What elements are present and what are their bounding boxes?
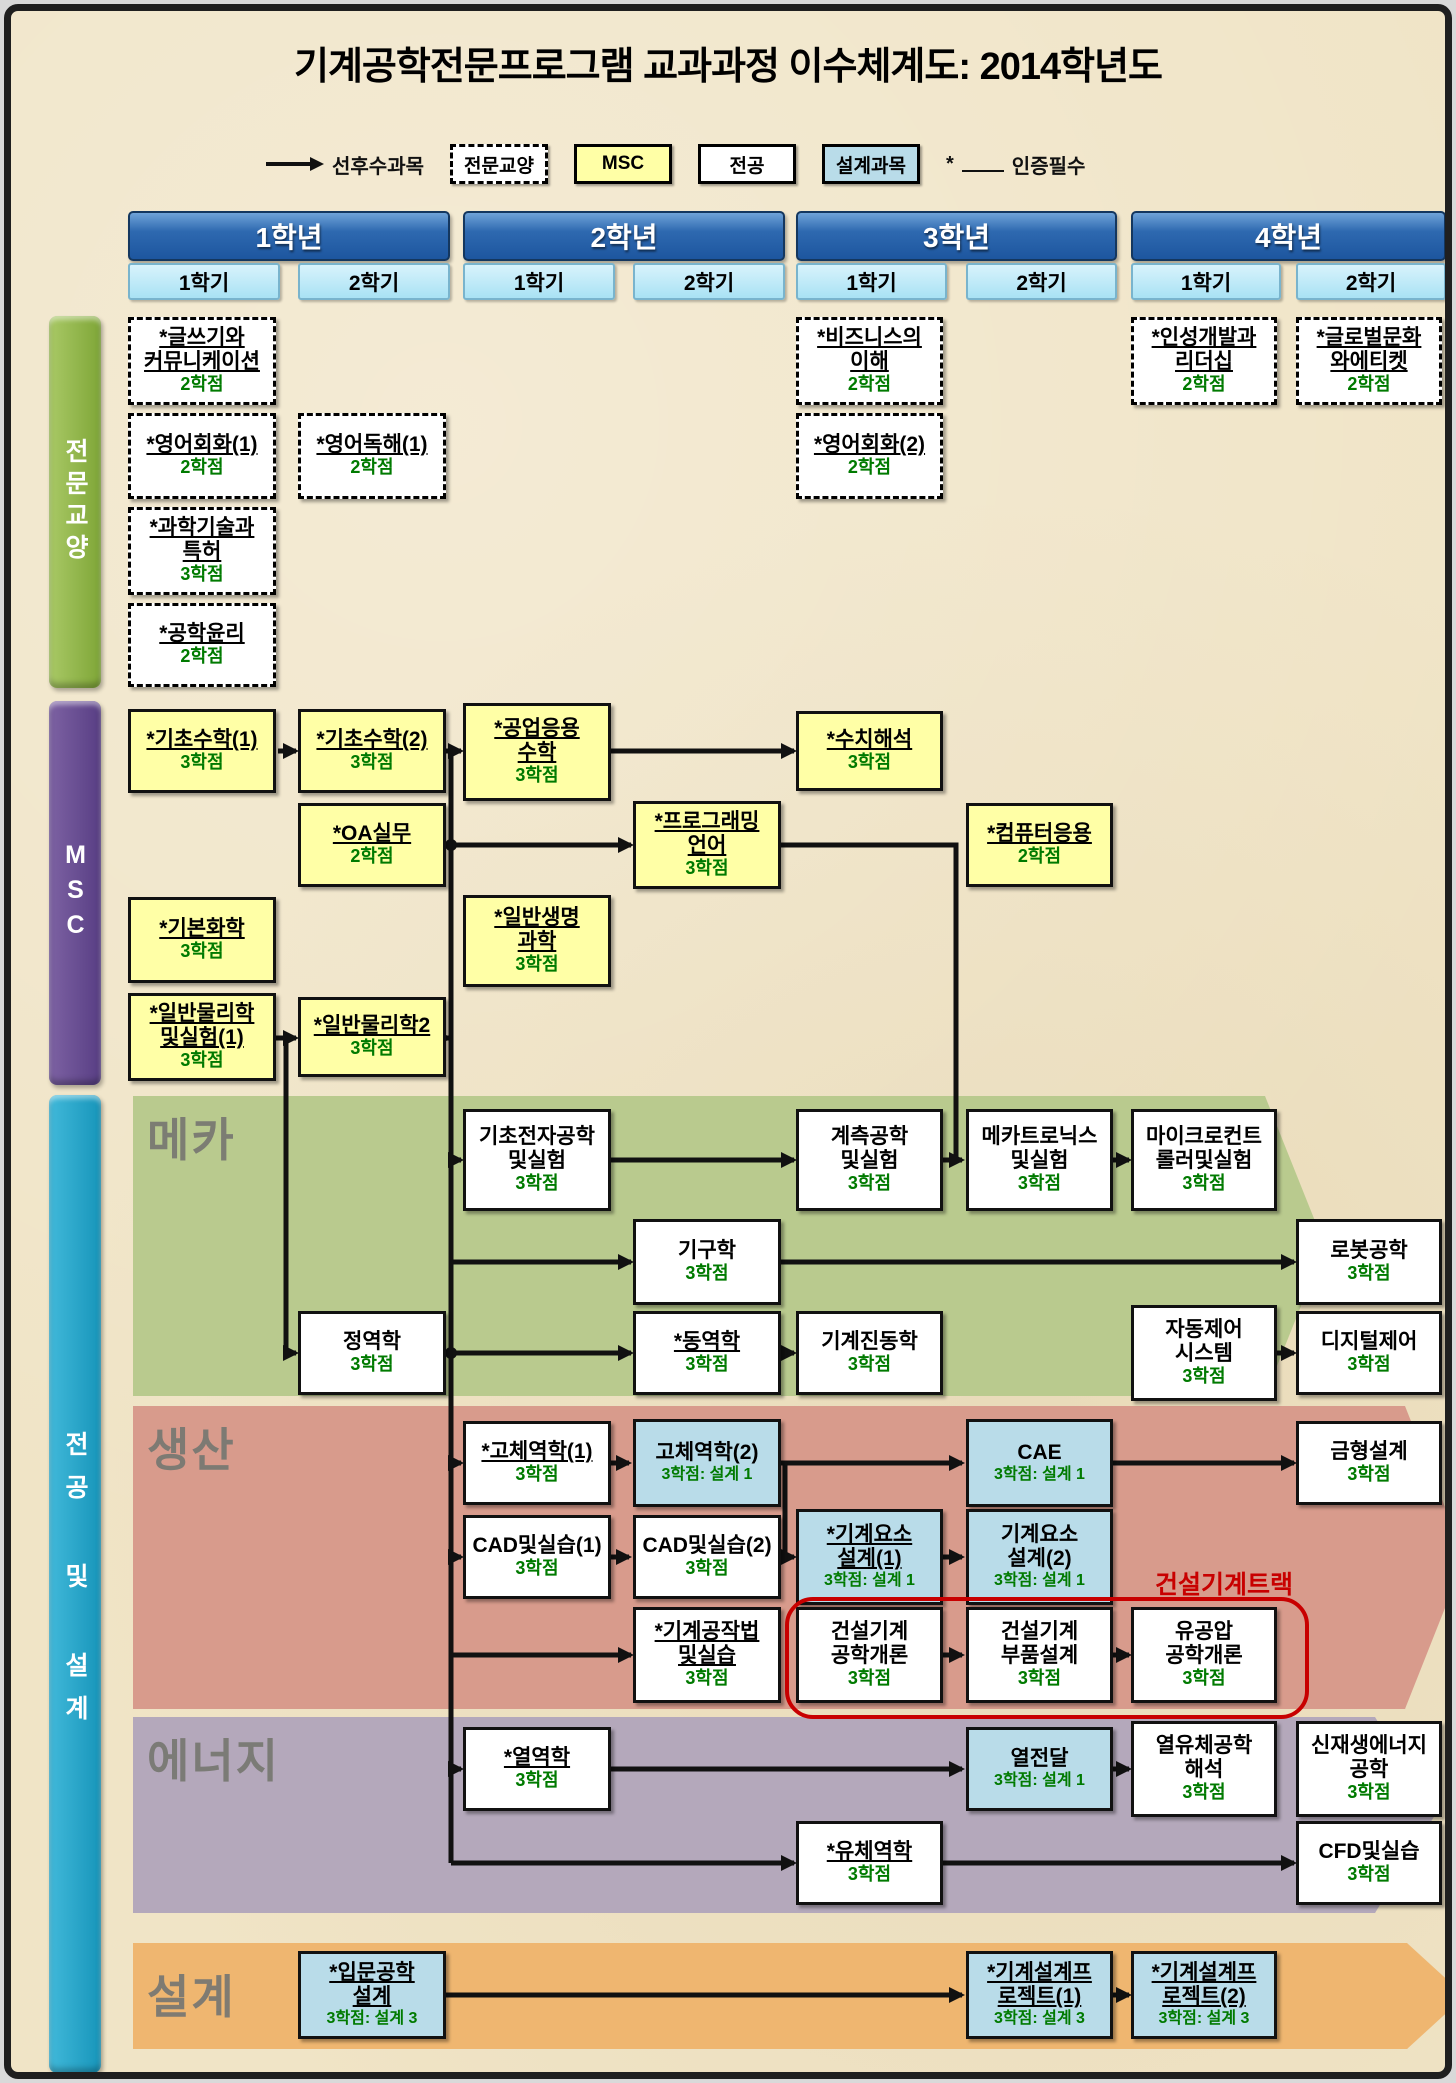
course-title: *일반생명 과학 bbox=[494, 906, 579, 954]
sidebar-msc: MSC bbox=[49, 701, 101, 1085]
course-box: *열역학3학점 bbox=[463, 1727, 611, 1811]
course-title: 신재생에너지 공학 bbox=[1311, 1734, 1427, 1782]
course-title: *동역학 bbox=[674, 1330, 740, 1354]
course-credit: 2학점 bbox=[180, 374, 223, 396]
course-box: *기계설계프 로젝트(2)3학점: 설계 3 bbox=[1131, 1951, 1277, 2039]
underline-sample bbox=[962, 156, 1004, 172]
course-box: *기계요소 설계(1)3학점: 설계 1 bbox=[796, 1509, 943, 1605]
course-box: *영어독해(1)2학점 bbox=[298, 413, 446, 499]
course-title: 열유체공학 해석 bbox=[1156, 1734, 1253, 1782]
course-title: 로봇공학 bbox=[1330, 1239, 1407, 1263]
course-title: *공학윤리 bbox=[159, 622, 244, 646]
course-box: *영어회화(2)2학점 bbox=[796, 413, 943, 499]
course-credit: 3학점 bbox=[685, 1354, 728, 1376]
course-credit: 3학점 bbox=[515, 1770, 558, 1792]
course-credit: 3학점 bbox=[180, 564, 223, 586]
course-box: *일반물리학 및실험(1)3학점 bbox=[128, 993, 276, 1081]
legend-msc-sample: MSC bbox=[574, 144, 672, 184]
course-box: 기구학3학점 bbox=[633, 1219, 781, 1305]
legend-required: * 인증필수 bbox=[946, 150, 1085, 179]
course-box: CAE3학점: 설계 1 bbox=[966, 1419, 1113, 1507]
course-box: *기계설계프 로젝트(1)3학점: 설계 3 bbox=[966, 1951, 1113, 2039]
course-box: 열유체공학 해석3학점 bbox=[1131, 1721, 1277, 1817]
course-title: *비즈니스의 이해 bbox=[817, 326, 922, 374]
course-title: 자동제어 시스템 bbox=[1165, 1318, 1242, 1366]
course-title: *유체역학 bbox=[827, 1840, 912, 1864]
course-box: *고체역학(1)3학점 bbox=[463, 1421, 611, 1505]
arrow-icon bbox=[266, 156, 324, 172]
course-title: *프로그래밍 언어 bbox=[655, 810, 760, 858]
course-credit: 3학점: 설계 1 bbox=[994, 1771, 1085, 1790]
course-credit: 3학점: 설계 3 bbox=[994, 2009, 1085, 2028]
course-title: CAE bbox=[1017, 1441, 1061, 1465]
course-box: *유체역학3학점 bbox=[796, 1821, 943, 1905]
course-credit: 2학점 bbox=[1182, 374, 1225, 396]
course-title: 메카트로닉스 및실험 bbox=[982, 1125, 1098, 1173]
course-box: 디지털제어3학점 bbox=[1296, 1311, 1442, 1395]
course-title: 금형설계 bbox=[1330, 1440, 1407, 1464]
course-box: 로봇공학3학점 bbox=[1296, 1219, 1442, 1305]
course-title: *컴퓨터응용 bbox=[987, 822, 1092, 846]
course-title: 기계진동학 bbox=[821, 1330, 918, 1354]
semester-cell-1-2: 2학기 bbox=[298, 263, 450, 300]
course-credit: 3학점 bbox=[1347, 1782, 1390, 1804]
course-credit: 2학점 bbox=[1018, 846, 1061, 868]
track-label-energy: 에너지 bbox=[147, 1725, 280, 1791]
construction-track-label: 건설기계트랙 bbox=[1119, 1565, 1329, 1601]
course-title: *열역학 bbox=[504, 1746, 570, 1770]
track-label-design: 설계 bbox=[147, 1961, 236, 2027]
legend-major-sample: 전공 bbox=[698, 144, 796, 184]
course-credit: 2학점 bbox=[848, 374, 891, 396]
legend-liberal-sample: 전문교양 bbox=[450, 144, 548, 184]
course-box: *기초수학(2)3학점 bbox=[298, 709, 446, 793]
course-title: *기계요소 설계(1) bbox=[827, 1523, 912, 1571]
course-credit: 3학점 bbox=[350, 1038, 393, 1060]
course-credit: 3학점 bbox=[515, 1173, 558, 1195]
course-credit: 3학점 bbox=[1347, 1864, 1390, 1886]
course-credit: 3학점 bbox=[1018, 1173, 1061, 1195]
course-title: *기초수학(2) bbox=[316, 728, 427, 752]
course-box: 열전달3학점: 설계 1 bbox=[966, 1727, 1113, 1811]
legend: 선후수과목 전문교양 MSC 전공 설계과목 * 인증필수 bbox=[266, 143, 1216, 185]
semester-cell-2-1: 1학기 bbox=[463, 263, 615, 300]
course-title: *글로벌문화 와에티켓 bbox=[1317, 326, 1422, 374]
course-title: 정역학 bbox=[343, 1330, 401, 1354]
course-title: *영어회화(2) bbox=[814, 433, 925, 457]
course-title: *일반물리학2 bbox=[314, 1014, 430, 1038]
course-credit: 2학점 bbox=[350, 457, 393, 479]
course-title: 계측공학 및실험 bbox=[831, 1125, 908, 1173]
course-box: 메카트로닉스 및실험3학점 bbox=[966, 1109, 1113, 1211]
course-credit: 2학점 bbox=[848, 457, 891, 479]
course-credit: 3학점 bbox=[848, 752, 891, 774]
course-credit: 3학점 bbox=[1182, 1173, 1225, 1195]
course-box: *동역학3학점 bbox=[633, 1311, 781, 1395]
legend-arrow-label: 선후수과목 bbox=[332, 150, 424, 179]
course-box: 신재생에너지 공학3학점 bbox=[1296, 1721, 1442, 1817]
course-title: *영어독해(1) bbox=[316, 433, 427, 457]
course-box: *기초수학(1)3학점 bbox=[128, 709, 276, 793]
course-box: CAD및실습(1)3학점 bbox=[463, 1515, 611, 1599]
sidebar-liberal-arts: 전문교양 bbox=[49, 316, 101, 688]
course-box: 자동제어 시스템3학점 bbox=[1131, 1305, 1277, 1401]
course-title: *기본화학 bbox=[159, 917, 244, 941]
course-box: *컴퓨터응용2학점 bbox=[966, 803, 1113, 887]
course-box: *일반생명 과학3학점 bbox=[463, 895, 611, 987]
course-credit: 3학점 bbox=[515, 1464, 558, 1486]
course-title: 기계요소 설계(2) bbox=[1001, 1523, 1078, 1571]
course-title: *글쓰기와 커뮤니케이션 bbox=[144, 326, 260, 374]
course-credit: 3학점 bbox=[350, 1354, 393, 1376]
course-credit: 3학점 bbox=[848, 1864, 891, 1886]
course-credit: 3학점 bbox=[180, 752, 223, 774]
course-credit: 3학점 bbox=[180, 941, 223, 963]
course-credit: 3학점 bbox=[1182, 1782, 1225, 1804]
course-box: *일반물리학23학점 bbox=[298, 997, 446, 1077]
course-title: 기초전자공학 및실험 bbox=[479, 1125, 595, 1173]
course-title: CAD및실습(1) bbox=[472, 1534, 601, 1558]
course-credit: 3학점 bbox=[685, 1558, 728, 1580]
course-credit: 3학점 bbox=[685, 858, 728, 880]
course-box: *비즈니스의 이해2학점 bbox=[796, 317, 943, 405]
year-header-1: 1학년 bbox=[128, 211, 450, 261]
course-credit: 3학점: 설계 1 bbox=[662, 1465, 753, 1484]
course-title: CFD및실습 bbox=[1318, 1840, 1419, 1864]
course-box: 기계진동학3학점 bbox=[796, 1311, 943, 1395]
course-box: *인성개발과 리더십2학점 bbox=[1131, 317, 1277, 405]
course-credit: 2학점 bbox=[180, 457, 223, 479]
diagram-frame: 기계공학전문프로그램 교과과정 이수체계도: 2014학년도 선후수과목 전문교… bbox=[4, 4, 1452, 2079]
course-title: *기초수학(1) bbox=[146, 728, 257, 752]
course-box: *기본화학3학점 bbox=[128, 897, 276, 983]
course-title: CAD및실습(2) bbox=[642, 1534, 771, 1558]
course-credit: 2학점 bbox=[180, 646, 223, 668]
course-title: *영어회화(1) bbox=[146, 433, 257, 457]
course-title: *OA실무 bbox=[333, 822, 411, 846]
semester-cell-3-1: 1학기 bbox=[796, 263, 947, 300]
year-header-4: 4학년 bbox=[1131, 211, 1446, 261]
course-box: *OA실무2학점 bbox=[298, 803, 446, 887]
course-credit: 3학점 bbox=[685, 1263, 728, 1285]
course-title: *과학기술과 특허 bbox=[150, 516, 255, 564]
track-label-mecha: 메카 bbox=[147, 1104, 236, 1170]
semester-cell-1-1: 1학기 bbox=[128, 263, 280, 300]
semester-cell-3-2: 2학기 bbox=[966, 263, 1117, 300]
course-credit: 3학점: 설계 3 bbox=[1159, 2009, 1250, 2028]
course-title: *기계공작법 및실습 bbox=[655, 1620, 760, 1668]
course-title: *입문공학 설계 bbox=[329, 1961, 414, 2009]
course-box: *공학윤리2학점 bbox=[128, 603, 276, 687]
year-header-2: 2학년 bbox=[463, 211, 785, 261]
sidebar-major-design: 전공 및 설계 bbox=[49, 1095, 101, 2073]
course-credit: 3학점 bbox=[350, 752, 393, 774]
course-credit: 3학점 bbox=[1347, 1354, 1390, 1376]
track-label-production: 생산 bbox=[147, 1414, 236, 1480]
course-credit: 3학점 bbox=[685, 1668, 728, 1690]
course-box: 고체역학(2)3학점: 설계 1 bbox=[633, 1419, 781, 1507]
course-title: 고체역학(2) bbox=[656, 1441, 759, 1465]
course-box: *입문공학 설계3학점: 설계 3 bbox=[298, 1951, 446, 2039]
course-box: 마이크로컨트 롤러및실험3학점 bbox=[1131, 1109, 1277, 1211]
course-title: *고체역학(1) bbox=[481, 1440, 592, 1464]
course-title: *수치해석 bbox=[827, 728, 912, 752]
course-box: CAD및실습(2)3학점 bbox=[633, 1515, 781, 1599]
course-box: 기초전자공학 및실험3학점 bbox=[463, 1109, 611, 1211]
course-box: 기계요소 설계(2)3학점: 설계 1 bbox=[966, 1509, 1113, 1605]
course-box: *공업응용 수학3학점 bbox=[463, 703, 611, 801]
page-title: 기계공학전문프로그램 교과과정 이수체계도: 2014학년도 bbox=[11, 35, 1445, 90]
course-title: *일반물리학 및실험(1) bbox=[150, 1002, 255, 1050]
course-credit: 3학점 bbox=[1182, 1366, 1225, 1388]
course-box: *글쓰기와 커뮤니케이션2학점 bbox=[128, 317, 276, 405]
course-title: 디지털제어 bbox=[1321, 1330, 1418, 1354]
course-title: *공업응용 수학 bbox=[494, 717, 579, 765]
course-credit: 3학점: 설계 1 bbox=[994, 1571, 1085, 1590]
course-credit: 3학점 bbox=[515, 1558, 558, 1580]
course-title: 기구학 bbox=[678, 1239, 736, 1263]
course-title: 마이크로컨트 롤러및실험 bbox=[1146, 1125, 1262, 1173]
course-box: *기계공작법 및실습3학점 bbox=[633, 1607, 781, 1703]
course-box: CFD및실습3학점 bbox=[1296, 1821, 1442, 1905]
course-box: 계측공학 및실험3학점 bbox=[796, 1109, 943, 1211]
course-credit: 2학점 bbox=[1347, 374, 1390, 396]
semester-cell-4-1: 1학기 bbox=[1131, 263, 1281, 300]
course-credit: 3학점 bbox=[515, 954, 558, 976]
legend-prerequisite: 선후수과목 bbox=[266, 150, 424, 179]
course-credit: 2학점 bbox=[350, 846, 393, 868]
course-credit: 3학점 bbox=[848, 1354, 891, 1376]
course-credit: 3학점: 설계 1 bbox=[824, 1571, 915, 1590]
course-credit: 3학점 bbox=[1347, 1263, 1390, 1285]
course-credit: 3학점: 설계 1 bbox=[994, 1465, 1085, 1484]
asterisk-icon: * bbox=[946, 153, 954, 176]
course-title: *기계설계프 로젝트(2) bbox=[1152, 1961, 1257, 2009]
course-box: *프로그래밍 언어3학점 bbox=[633, 801, 781, 889]
course-box: 정역학3학점 bbox=[298, 1311, 446, 1395]
course-title: *인성개발과 리더십 bbox=[1152, 326, 1257, 374]
course-title: 열전달 bbox=[1011, 1747, 1069, 1771]
course-box: *수치해석3학점 bbox=[796, 711, 943, 791]
semester-cell-2-2: 2학기 bbox=[633, 263, 785, 300]
course-box: *글로벌문화 와에티켓2학점 bbox=[1296, 317, 1442, 405]
course-credit: 3학점 bbox=[1347, 1464, 1390, 1486]
course-box: *영어회화(1)2학점 bbox=[128, 413, 276, 499]
course-credit: 3학점 bbox=[515, 765, 558, 787]
course-credit: 3학점 bbox=[848, 1173, 891, 1195]
course-title: *기계설계프 로젝트(1) bbox=[987, 1961, 1092, 2009]
semester-cell-4-2: 2학기 bbox=[1296, 263, 1446, 300]
year-header-3: 3학년 bbox=[796, 211, 1117, 261]
curriculum-diagram: 기계공학전문프로그램 교과과정 이수체계도: 2014학년도 선후수과목 전문교… bbox=[0, 0, 1456, 2083]
construction-track-outline bbox=[785, 1597, 1309, 1719]
course-credit: 3학점 bbox=[180, 1050, 223, 1072]
course-credit: 3학점: 설계 3 bbox=[327, 2009, 418, 2028]
course-box: *과학기술과 특허3학점 bbox=[128, 507, 276, 595]
legend-required-label: 인증필수 bbox=[1012, 150, 1086, 179]
course-box: 금형설계3학점 bbox=[1296, 1421, 1442, 1505]
legend-design-sample: 설계과목 bbox=[822, 144, 920, 184]
